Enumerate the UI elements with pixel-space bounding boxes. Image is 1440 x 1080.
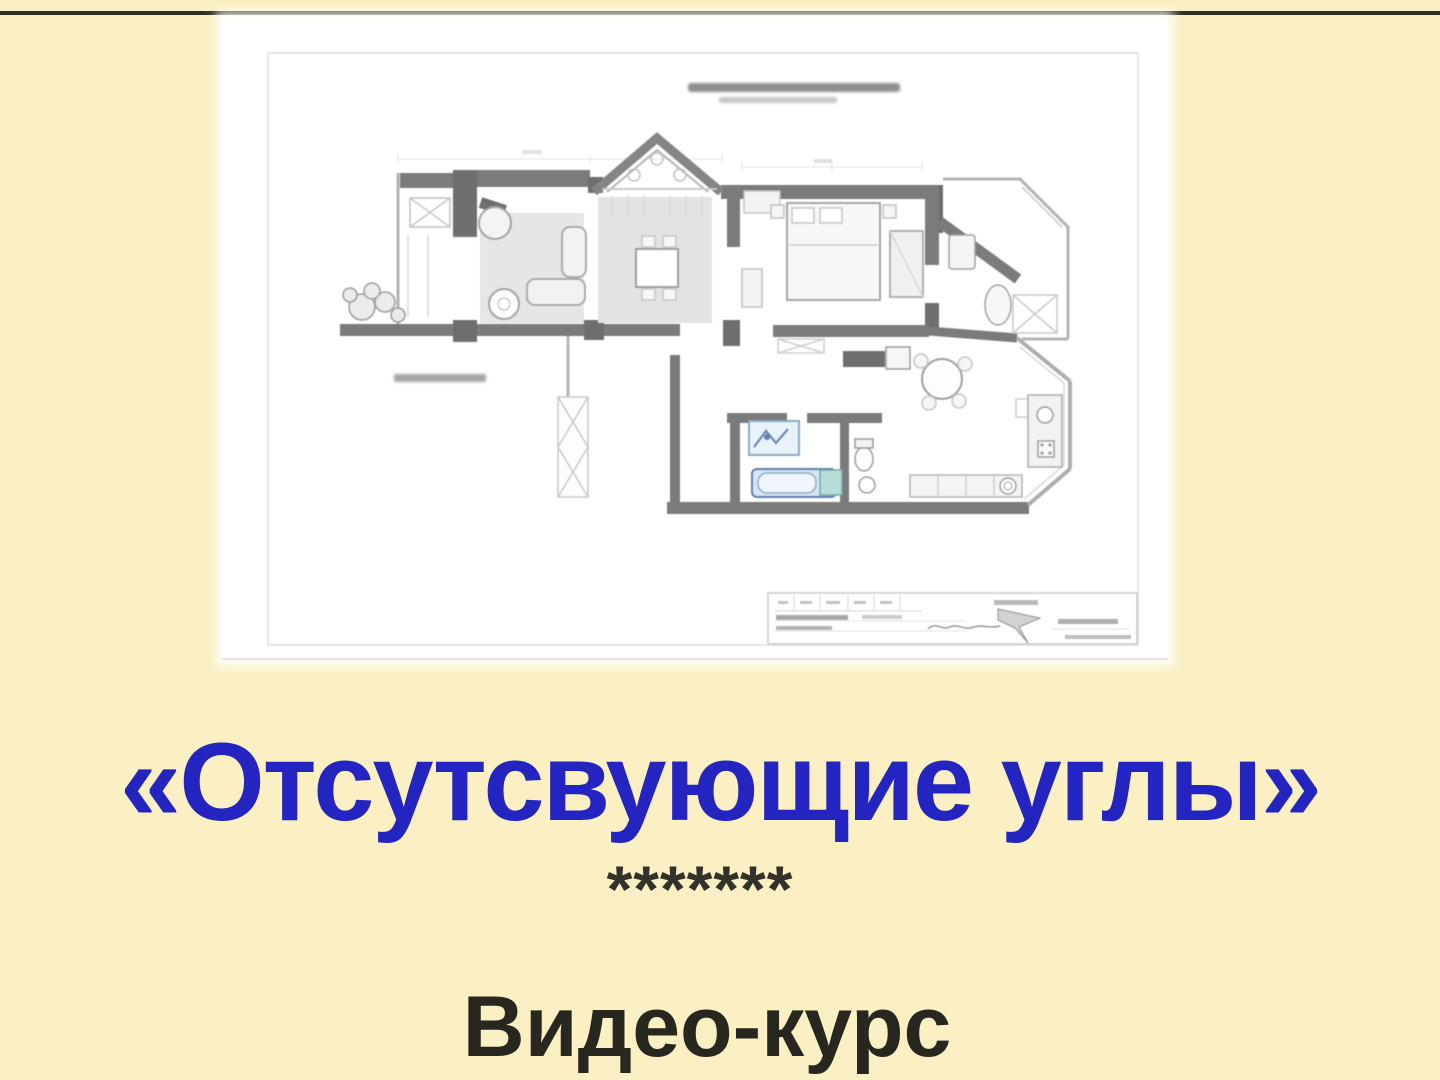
- entrance-hatch: [558, 336, 588, 497]
- room-living: [479, 197, 586, 323]
- separator-stars: *******: [0, 856, 1400, 922]
- drawing-frame: [268, 53, 1138, 645]
- gable-bay: [594, 138, 721, 192]
- title-block: [768, 593, 1137, 644]
- balcony-left: [343, 173, 450, 330]
- bathroom: [749, 421, 875, 497]
- poster-subtitle: Видео-курс: [0, 984, 1414, 1070]
- top-rule: [0, 11, 1440, 15]
- poster-title: «Отсутсвующие углы»: [0, 728, 1440, 838]
- kitchen: [886, 338, 1070, 505]
- floorplan-paper: [222, 17, 1168, 660]
- plants: [343, 283, 405, 322]
- room-center: [598, 195, 712, 323]
- caption-blur-top: [688, 83, 900, 103]
- caption-blur-left: [394, 374, 486, 382]
- door-hatch: [778, 339, 824, 353]
- floorplan-drawing: [222, 17, 1168, 660]
